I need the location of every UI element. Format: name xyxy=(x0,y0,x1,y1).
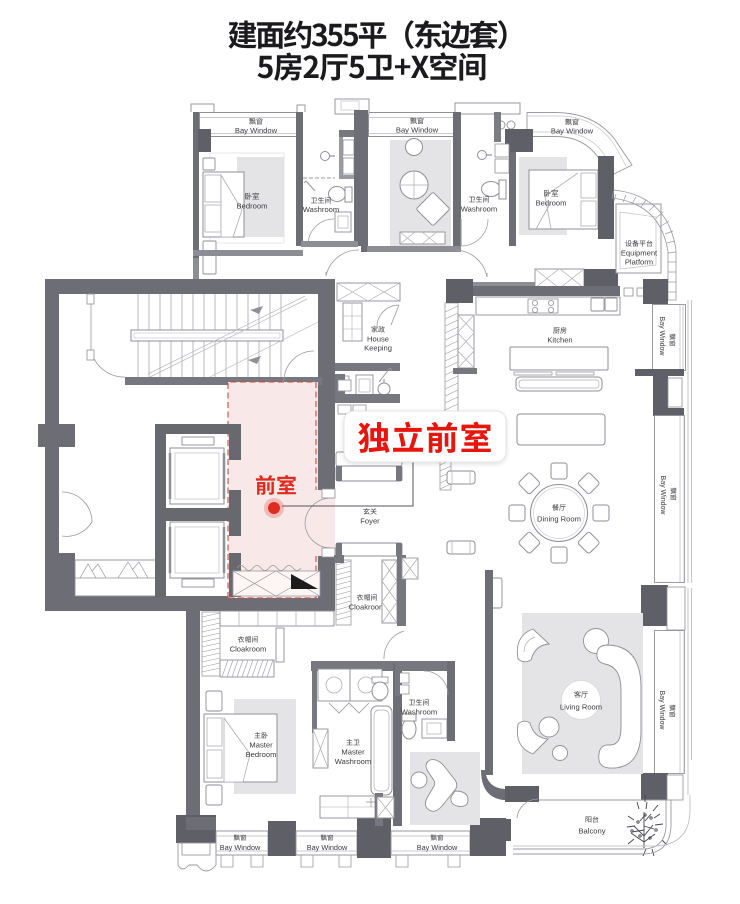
svg-text:Foyer: Foyer xyxy=(360,517,380,526)
svg-text:Cloakroom: Cloakroom xyxy=(230,645,267,654)
svg-text:Keeping: Keeping xyxy=(364,344,392,353)
svg-text:Balcony: Balcony xyxy=(578,827,605,836)
svg-text:Bay Window: Bay Window xyxy=(235,126,278,135)
svg-text:Bay Window: Bay Window xyxy=(658,691,665,731)
svg-text:Bedroom: Bedroom xyxy=(246,750,277,759)
svg-text:Bay Window: Bay Window xyxy=(659,476,666,516)
svg-text:Bay Window: Bay Window xyxy=(307,843,348,852)
svg-text:Equipment: Equipment xyxy=(621,249,658,258)
svg-text:Cloakroom: Cloakroom xyxy=(349,603,386,612)
svg-text:Kitchen: Kitchen xyxy=(547,336,572,345)
svg-text:Bay Window: Bay Window xyxy=(551,127,594,136)
svg-text:Bay Window: Bay Window xyxy=(220,843,261,852)
svg-text:Master: Master xyxy=(249,741,273,750)
svg-text:Master: Master xyxy=(341,748,365,757)
svg-text:Bedroom: Bedroom xyxy=(237,202,268,211)
svg-text:Platform: Platform xyxy=(625,258,653,267)
svg-text:Washroom: Washroom xyxy=(335,757,371,766)
svg-text:Bedroom: Bedroom xyxy=(536,199,567,208)
svg-text:Washroom: Washroom xyxy=(303,205,339,214)
svg-text:Bay Window: Bay Window xyxy=(658,317,665,357)
svg-text:House: House xyxy=(367,335,389,344)
svg-text:Bay Window: Bay Window xyxy=(417,843,458,852)
svg-text:Bay Window: Bay Window xyxy=(396,126,439,135)
svg-text:Washroom: Washroom xyxy=(401,708,437,717)
svg-text:Dining Room: Dining Room xyxy=(537,515,581,524)
svg-text:Washroom: Washroom xyxy=(461,205,497,214)
svg-text:Living Room: Living Room xyxy=(560,703,602,712)
